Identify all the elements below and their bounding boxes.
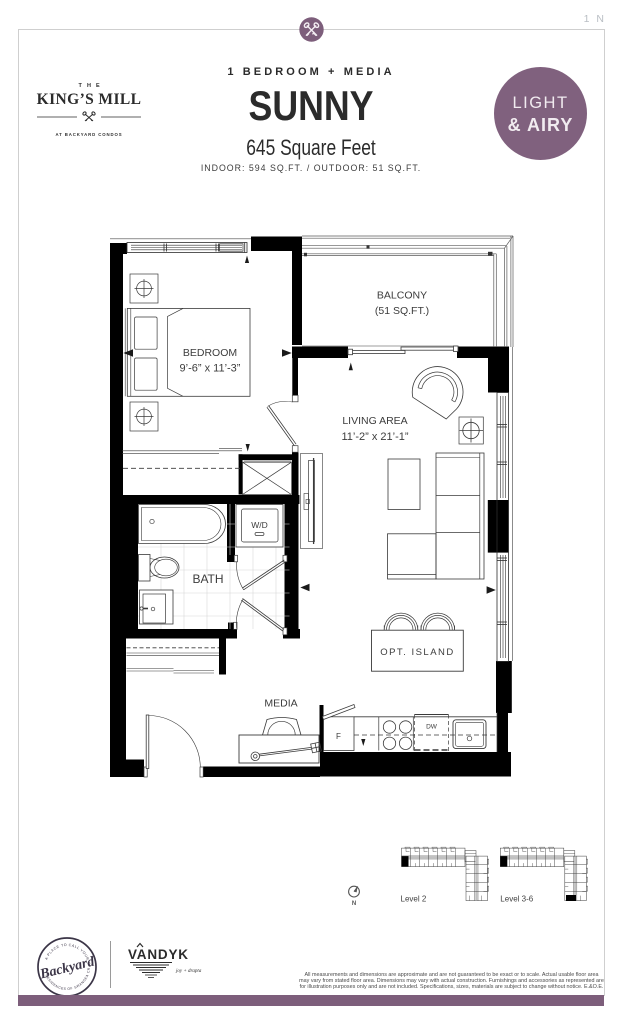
svg-text:joy + drapta: joy + drapta [175,969,202,974]
svg-text:OPT. ISLAND: OPT. ISLAND [380,647,455,658]
svg-text:BALCONY: BALCONY [377,290,427,302]
svg-text:W/D: W/D [251,520,268,530]
svg-text:11’-2” x 21’-1”: 11’-2” x 21’-1” [341,431,408,443]
svg-text:9’-6” x 11’-3”: 9’-6” x 11’-3” [180,363,241,375]
svg-text:VANDYK: VANDYK [128,947,189,962]
svg-text:(51 SQ.FT.): (51 SQ.FT.) [375,305,429,317]
svg-text:BEDROOM: BEDROOM [183,347,237,359]
svg-text:BATH: BATH [192,572,223,586]
svg-text:MEDIA: MEDIA [264,698,297,710]
svg-text:N: N [352,901,356,907]
svg-text:LIVING AREA: LIVING AREA [342,415,407,427]
svg-text:F: F [336,732,341,741]
svg-text:DW: DW [426,724,438,731]
svg-text:Level 2: Level 2 [401,895,427,904]
svg-text:Level 3-6: Level 3-6 [500,895,533,904]
